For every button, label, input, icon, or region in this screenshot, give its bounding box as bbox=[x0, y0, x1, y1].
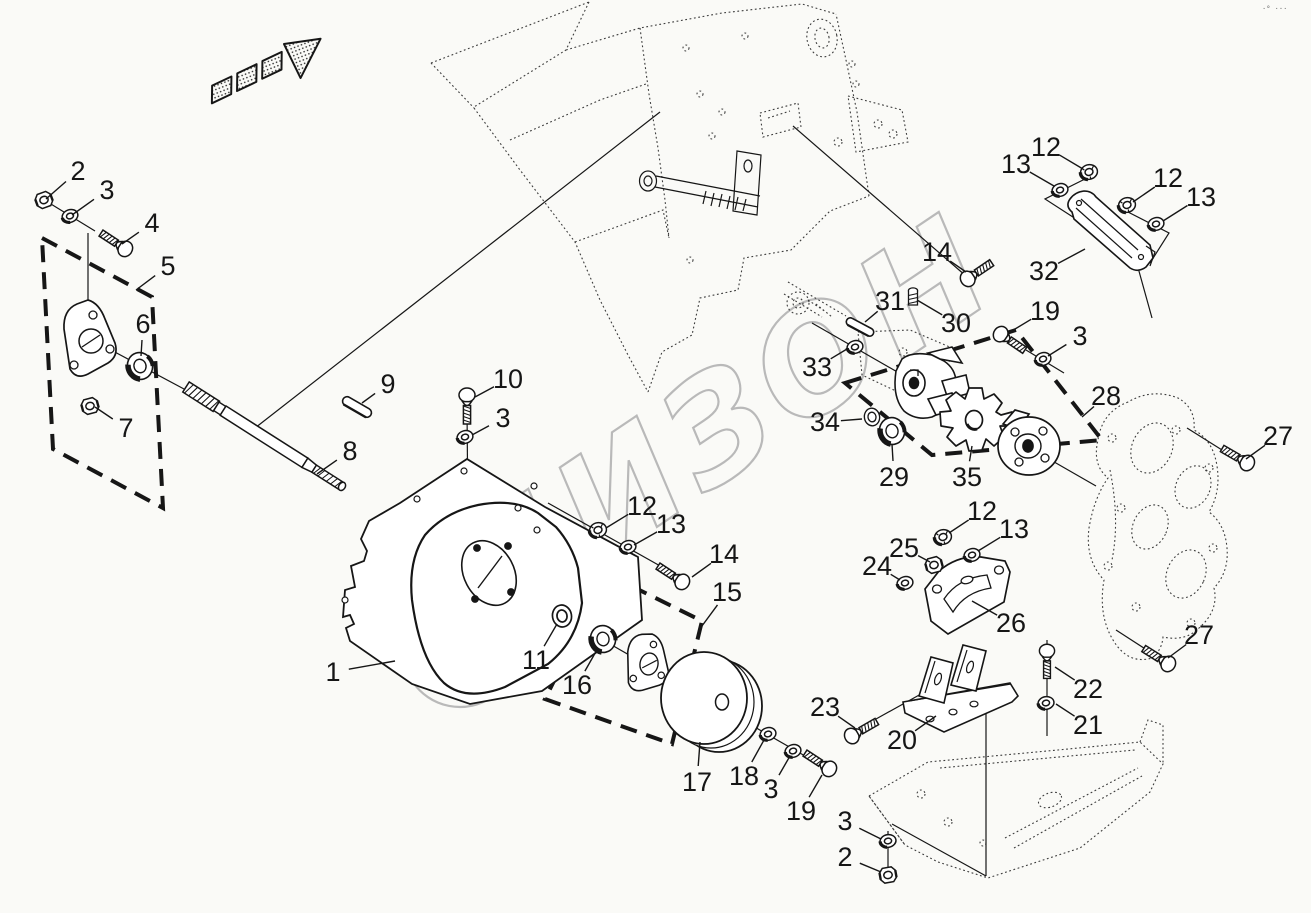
callout-label-12: 12 bbox=[1153, 163, 1183, 193]
callout-label-27: 27 bbox=[1263, 421, 1293, 451]
callout-label-34: 34 bbox=[810, 407, 840, 437]
callout-label-13: 13 bbox=[1001, 149, 1031, 179]
corner-print-mark: ·° ··· bbox=[1262, 5, 1287, 13]
callout-label-3: 3 bbox=[763, 774, 778, 804]
callout-label-24: 24 bbox=[862, 551, 892, 581]
callout-label-13: 13 bbox=[656, 509, 686, 539]
callout-label-13: 13 bbox=[999, 514, 1029, 544]
callout-label-6: 6 bbox=[135, 309, 150, 339]
callout-label-15: 15 bbox=[712, 577, 742, 607]
callout-label-3: 3 bbox=[1072, 321, 1087, 351]
callout-label-11: 11 bbox=[522, 645, 550, 675]
nut-2b bbox=[879, 866, 897, 884]
callout-label-7: 7 bbox=[118, 413, 133, 443]
callout-label-25: 25 bbox=[889, 533, 919, 563]
callout-label-1: 1 bbox=[325, 657, 340, 687]
callout-label-23: 23 bbox=[810, 692, 840, 722]
callout-label-3: 3 bbox=[837, 806, 852, 836]
parts-diagram-page: БИЗОН bbox=[0, 0, 1311, 913]
callout-label-8: 8 bbox=[342, 436, 357, 466]
callout-label-19: 19 bbox=[786, 796, 816, 826]
callout-label-2: 2 bbox=[70, 156, 85, 186]
callout-label-20: 20 bbox=[887, 725, 917, 755]
callout-label-14: 14 bbox=[922, 237, 952, 267]
callout-label-16: 16 bbox=[562, 670, 592, 700]
callout-label-14: 14 bbox=[709, 539, 739, 569]
callout-label-17: 17 bbox=[682, 767, 712, 797]
callout-label-12: 12 bbox=[627, 491, 657, 521]
callout-label-31: 31 bbox=[875, 286, 905, 316]
callout-label-4: 4 bbox=[144, 208, 159, 238]
callout-leader-6 bbox=[141, 340, 142, 356]
callout-label-29: 29 bbox=[879, 462, 909, 492]
callout-label-18: 18 bbox=[729, 761, 759, 791]
callout-label-10: 10 bbox=[493, 364, 523, 394]
callout-label-35: 35 bbox=[952, 462, 982, 492]
callout-label-2: 2 bbox=[837, 842, 852, 872]
callout-label-33: 33 bbox=[802, 352, 832, 382]
callout-label-9: 9 bbox=[380, 369, 395, 399]
callout-label-28: 28 bbox=[1091, 381, 1121, 411]
callout-label-12: 12 bbox=[1031, 132, 1061, 162]
callout-label-26: 26 bbox=[996, 608, 1026, 638]
setscrew-30 bbox=[908, 288, 917, 305]
callout-label-5: 5 bbox=[160, 251, 175, 281]
exploded-parts-diagram: БИЗОН bbox=[0, 0, 1311, 913]
callout-label-22: 22 bbox=[1073, 674, 1103, 704]
callout-leader-29 bbox=[892, 444, 893, 461]
callout-label-30: 30 bbox=[941, 308, 971, 338]
callout-label-3: 3 bbox=[99, 175, 114, 205]
callout-label-27: 27 bbox=[1184, 620, 1214, 650]
callout-label-13: 13 bbox=[1186, 182, 1216, 212]
callout-label-3: 3 bbox=[495, 403, 510, 433]
callout-label-32: 32 bbox=[1029, 256, 1059, 286]
callout-label-12: 12 bbox=[967, 496, 997, 526]
callout-label-19: 19 bbox=[1030, 296, 1060, 326]
callout-label-21: 21 bbox=[1073, 710, 1103, 740]
